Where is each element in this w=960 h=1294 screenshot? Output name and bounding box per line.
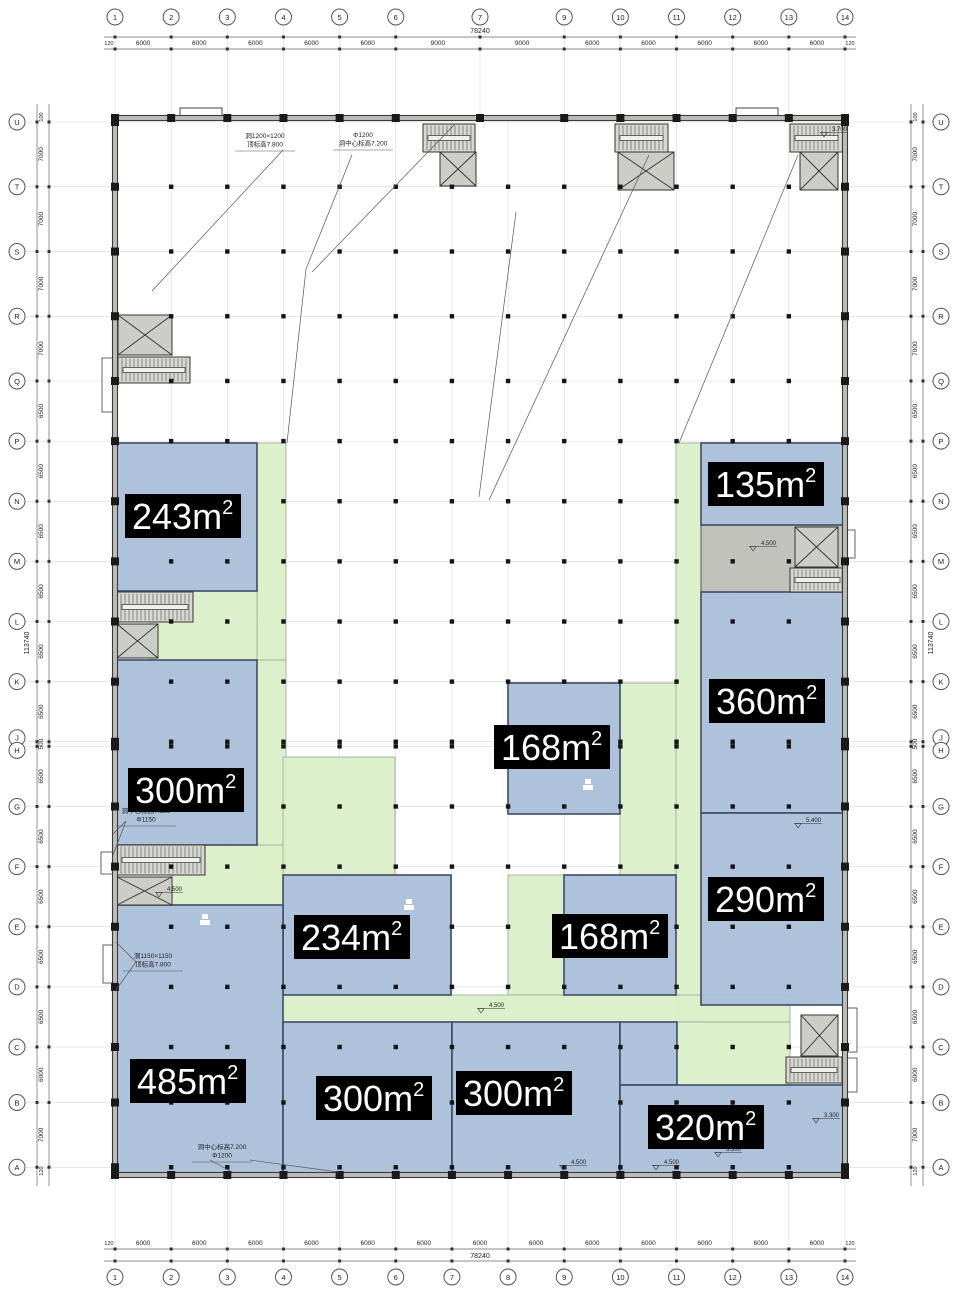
column-dot bbox=[337, 1045, 341, 1049]
axis-bubble-label: 7 bbox=[478, 13, 482, 22]
dim-tick bbox=[282, 48, 285, 51]
dim-label: 6000 bbox=[136, 1240, 151, 1247]
corridor-area bbox=[676, 1022, 790, 1085]
column-dot bbox=[225, 864, 229, 868]
axis-bubble-label: 2 bbox=[169, 13, 173, 22]
axis-bubble-label: S bbox=[14, 247, 19, 256]
axis-bubble-label: 12 bbox=[729, 1273, 737, 1282]
column-dot bbox=[450, 499, 454, 503]
column-dot bbox=[450, 740, 454, 744]
axis-bubble-label: 3 bbox=[225, 13, 229, 22]
axis-bubble-label: K bbox=[938, 677, 943, 686]
wall-column-mark bbox=[336, 114, 344, 122]
dim-tick bbox=[450, 1260, 453, 1263]
wall-column-mark bbox=[111, 983, 119, 991]
dim-tick bbox=[922, 1166, 925, 1169]
dim-tick bbox=[675, 48, 678, 51]
dim-tick bbox=[450, 1248, 453, 1251]
wall-column-mark bbox=[392, 114, 400, 122]
dim-tick bbox=[910, 560, 913, 563]
column-dot bbox=[674, 679, 678, 683]
column-dot bbox=[225, 925, 229, 929]
axis-bubble-label: H bbox=[938, 746, 943, 755]
column-dot bbox=[730, 439, 734, 443]
column-dot bbox=[281, 1165, 285, 1169]
wall-column-mark bbox=[729, 1171, 737, 1179]
dim-label: 6000 bbox=[304, 40, 319, 47]
column-dot bbox=[787, 985, 791, 989]
dim-label: 6000 bbox=[912, 1067, 919, 1082]
column-dot bbox=[787, 1045, 791, 1049]
stair-handrail bbox=[791, 1068, 837, 1073]
column-dot bbox=[730, 379, 734, 383]
dim-tick bbox=[619, 48, 622, 51]
dim-tick bbox=[787, 1260, 790, 1263]
column-dot bbox=[169, 619, 173, 623]
axis-bubble-label: L bbox=[15, 617, 19, 626]
column-dot bbox=[337, 744, 341, 748]
column-dot bbox=[450, 744, 454, 748]
column-dot bbox=[169, 439, 173, 443]
area-label: 300m2 bbox=[323, 1078, 424, 1119]
column-dot bbox=[787, 925, 791, 929]
dim-label: 6500 bbox=[38, 704, 45, 719]
column-dot bbox=[394, 864, 398, 868]
dim-tick bbox=[731, 36, 734, 39]
dim-label: 6500 bbox=[38, 829, 45, 844]
axis-bubble-label: 10 bbox=[616, 1273, 624, 1282]
axis-bubble-label: H bbox=[14, 746, 19, 755]
dim-tick bbox=[170, 1260, 173, 1263]
dim-tick bbox=[731, 1248, 734, 1251]
column-dot bbox=[225, 679, 229, 683]
axis-bubble-label: P bbox=[14, 437, 19, 446]
axis-bubble-label: 11 bbox=[673, 13, 681, 22]
column-dot bbox=[450, 1165, 454, 1169]
dim-tick bbox=[338, 1260, 341, 1263]
axis-bubble-label: 5 bbox=[338, 13, 342, 22]
wall-column-mark bbox=[223, 114, 231, 122]
axis-bubble-label: K bbox=[14, 677, 19, 686]
dim-label: 6000 bbox=[641, 1240, 656, 1247]
level-marker-value: 4.500 bbox=[571, 1160, 587, 1166]
dim-tick bbox=[36, 185, 39, 188]
column-dot bbox=[394, 1045, 398, 1049]
wall-column-mark bbox=[841, 312, 849, 320]
dim-label: 7000 bbox=[38, 212, 45, 227]
area-label: 300m2 bbox=[135, 770, 236, 811]
column-dot bbox=[281, 804, 285, 808]
annotation-text: 洞中心标高7.200 bbox=[198, 1142, 247, 1151]
dim-tick bbox=[36, 560, 39, 563]
column-dot bbox=[281, 1100, 285, 1104]
column-dot bbox=[169, 559, 173, 563]
axis-bubble-label: 11 bbox=[673, 1273, 681, 1282]
dim-tick bbox=[36, 680, 39, 683]
dim-tick bbox=[910, 985, 913, 988]
dim-tick bbox=[619, 1248, 622, 1251]
dim-tick bbox=[922, 865, 925, 868]
axis-bubble-label: E bbox=[938, 923, 943, 932]
axis-bubble-label: 9 bbox=[562, 1273, 566, 1282]
column-dot bbox=[730, 1100, 734, 1104]
dim-tick bbox=[922, 440, 925, 443]
column-dot bbox=[618, 499, 622, 503]
dim-tick bbox=[36, 985, 39, 988]
column-dot bbox=[394, 379, 398, 383]
column-dot bbox=[674, 379, 678, 383]
wall-column-mark bbox=[111, 312, 119, 320]
dim-tick bbox=[731, 1260, 734, 1263]
dim-tick bbox=[394, 1248, 397, 1251]
edge-dim-label: 120 bbox=[39, 1166, 45, 1175]
wall-column-mark bbox=[111, 618, 119, 626]
column-dot bbox=[337, 804, 341, 808]
column-dot bbox=[506, 619, 510, 623]
level-marker-value: 5.400 bbox=[806, 818, 822, 824]
wall-column-mark bbox=[841, 183, 849, 191]
axis-bubble-label: A bbox=[14, 1163, 19, 1172]
column-dot bbox=[169, 314, 173, 318]
dim-tick bbox=[282, 36, 285, 39]
column-dot bbox=[450, 439, 454, 443]
stair-handrail bbox=[795, 136, 838, 141]
column-dot bbox=[674, 744, 678, 748]
column-dot bbox=[225, 379, 229, 383]
dim-tick bbox=[48, 121, 51, 124]
column-dot bbox=[787, 249, 791, 253]
column-dot bbox=[506, 1045, 510, 1049]
column-dot bbox=[450, 249, 454, 253]
column-dot bbox=[562, 249, 566, 253]
wall-column-mark bbox=[841, 742, 849, 750]
axis-bubble-label: 13 bbox=[785, 1273, 793, 1282]
wall-column-mark bbox=[111, 863, 119, 871]
level-marker-value: 4.500 bbox=[167, 887, 183, 893]
column-dot bbox=[730, 740, 734, 744]
annotation-text: Φ1200 bbox=[353, 132, 373, 139]
dim-tick bbox=[922, 121, 925, 124]
column-dot bbox=[394, 619, 398, 623]
column-dot bbox=[730, 185, 734, 189]
column-dot bbox=[506, 185, 510, 189]
column-dot bbox=[169, 249, 173, 253]
axis-bubble-label: 4 bbox=[281, 1273, 285, 1282]
column-dot bbox=[450, 804, 454, 808]
level-marker-value: 4.500 bbox=[761, 541, 777, 547]
wall-column-mark bbox=[111, 497, 119, 505]
column-dot bbox=[337, 499, 341, 503]
wall-column-mark bbox=[476, 114, 484, 122]
dim-label: 7000 bbox=[912, 147, 919, 162]
column-dot bbox=[562, 439, 566, 443]
dim-tick bbox=[170, 48, 173, 51]
axis-bubble-label: E bbox=[14, 923, 19, 932]
wall-column-mark bbox=[841, 1171, 849, 1179]
dim-tick bbox=[48, 185, 51, 188]
dim-label: 6500 bbox=[912, 644, 919, 659]
edge-dim-label: 120 bbox=[845, 1241, 854, 1247]
dim-tick bbox=[48, 1101, 51, 1104]
column-dot bbox=[281, 379, 285, 383]
column-dot bbox=[730, 985, 734, 989]
column-dot bbox=[169, 740, 173, 744]
level-marker-value: 3.300 bbox=[824, 1113, 840, 1119]
dim-tick bbox=[48, 250, 51, 253]
column-dot bbox=[618, 314, 622, 318]
column-dot bbox=[394, 439, 398, 443]
area-label: 168m2 bbox=[559, 916, 660, 957]
column-dot bbox=[281, 249, 285, 253]
dim-tick bbox=[922, 745, 925, 748]
annotation-text: 洞中心标高7.200 bbox=[339, 139, 388, 148]
wall-column-mark bbox=[560, 114, 568, 122]
stair-handrail bbox=[122, 858, 200, 863]
toilet-icon bbox=[404, 905, 414, 910]
column-dot bbox=[674, 619, 678, 623]
area-label: 135m2 bbox=[715, 464, 816, 505]
wall-column-mark bbox=[785, 1171, 793, 1179]
dim-label: 7000 bbox=[38, 276, 45, 291]
axis-bubble-label: R bbox=[938, 312, 944, 321]
dim-label: 6000 bbox=[810, 40, 825, 47]
column-dot bbox=[562, 804, 566, 808]
total-dim-label: 78240 bbox=[470, 28, 490, 35]
area-label: 485m2 bbox=[137, 1061, 238, 1102]
column-dot bbox=[337, 314, 341, 318]
column-dot bbox=[337, 619, 341, 623]
dim-tick bbox=[507, 1248, 510, 1251]
wall-column-mark bbox=[560, 1171, 568, 1179]
wall-column-mark bbox=[504, 1171, 512, 1179]
leader-line bbox=[287, 269, 306, 443]
dim-label: 6500 bbox=[912, 1009, 919, 1024]
column-dot bbox=[281, 744, 285, 748]
dim-tick bbox=[48, 1166, 51, 1169]
dim-tick bbox=[36, 1101, 39, 1104]
column-dot bbox=[618, 439, 622, 443]
level-marker-value: 3.700 bbox=[832, 127, 848, 133]
column-dot bbox=[281, 925, 285, 929]
dim-tick bbox=[910, 315, 913, 318]
dim-tick bbox=[922, 315, 925, 318]
toilet-icon bbox=[406, 899, 412, 904]
column-dot bbox=[169, 185, 173, 189]
wall-column-mark bbox=[841, 618, 849, 626]
dim-tick bbox=[282, 1248, 285, 1251]
axis-bubble-label: 10 bbox=[616, 13, 624, 22]
annotation-text: 洞1150×1150 bbox=[134, 951, 173, 960]
dim-tick bbox=[48, 680, 51, 683]
axis-bubble-label: A bbox=[938, 1163, 943, 1172]
dim-tick bbox=[114, 48, 117, 51]
level-marker-value: 4.500 bbox=[664, 1160, 680, 1166]
column-dot bbox=[337, 740, 341, 744]
axis-bubble-label: 9 bbox=[562, 13, 566, 22]
dim-label: 6000 bbox=[697, 40, 712, 47]
column-dot bbox=[169, 379, 173, 383]
dim-label: 6000 bbox=[38, 1067, 45, 1082]
column-dot bbox=[225, 249, 229, 253]
dim-label: 7000 bbox=[912, 212, 919, 227]
column-dot bbox=[730, 744, 734, 748]
dim-tick bbox=[910, 680, 913, 683]
column-dot bbox=[618, 679, 622, 683]
column-dot bbox=[225, 1045, 229, 1049]
column-dot bbox=[394, 314, 398, 318]
annotation-text: 顶标高7.800 bbox=[247, 140, 283, 149]
dim-label: 6000 bbox=[248, 1240, 263, 1247]
dim-tick bbox=[338, 1248, 341, 1251]
axis-bubble-label: 8 bbox=[506, 1273, 510, 1282]
wall-column-mark bbox=[111, 183, 119, 191]
column-dot bbox=[281, 185, 285, 189]
dim-tick bbox=[910, 440, 913, 443]
dim-tick bbox=[619, 36, 622, 39]
column-dot bbox=[674, 314, 678, 318]
column-dot bbox=[618, 619, 622, 623]
level-marker-value: 4.500 bbox=[489, 1003, 505, 1009]
column-dot bbox=[394, 744, 398, 748]
column-dot bbox=[337, 679, 341, 683]
axis-bubble-label: B bbox=[14, 1098, 19, 1107]
axis-bubble-label: 3 bbox=[225, 1273, 229, 1282]
column-dot bbox=[281, 1045, 285, 1049]
dim-label: 6000 bbox=[304, 1240, 319, 1247]
annotation-text: Φ1150 bbox=[136, 817, 156, 824]
axis-bubble-label: C bbox=[14, 1043, 20, 1052]
edge-dim-label: 100 bbox=[39, 112, 45, 121]
dim-tick bbox=[910, 620, 913, 623]
column-dot bbox=[674, 499, 678, 503]
dim-label: 6500 bbox=[912, 949, 919, 964]
dim-tick bbox=[48, 805, 51, 808]
dim-label: 6500 bbox=[912, 464, 919, 479]
column-dot bbox=[787, 439, 791, 443]
wall-column-mark bbox=[111, 678, 119, 686]
column-dot bbox=[787, 1100, 791, 1104]
wall-column-mark bbox=[223, 1171, 231, 1179]
wall-column-mark bbox=[841, 863, 849, 871]
axis-bubble-label: L bbox=[939, 617, 943, 626]
column-dot bbox=[730, 864, 734, 868]
axis-bubble-label: F bbox=[939, 862, 944, 871]
dim-tick bbox=[563, 48, 566, 51]
column-dot bbox=[281, 314, 285, 318]
wall-column-mark bbox=[841, 1043, 849, 1051]
room-area bbox=[620, 1022, 677, 1085]
dim-tick bbox=[787, 1248, 790, 1251]
dim-tick bbox=[922, 380, 925, 383]
area-label: 168m2 bbox=[501, 727, 602, 768]
stair-handrail bbox=[795, 578, 840, 583]
column-dot bbox=[618, 744, 622, 748]
column-dot bbox=[506, 985, 510, 989]
column-dot bbox=[674, 985, 678, 989]
column-dot bbox=[337, 249, 341, 253]
dim-tick bbox=[338, 36, 341, 39]
dim-tick bbox=[48, 620, 51, 623]
dim-label: 6000 bbox=[192, 1240, 207, 1247]
axis-bubble-label: D bbox=[938, 983, 944, 992]
column-dot bbox=[394, 740, 398, 744]
dim-label: 6000 bbox=[810, 1240, 825, 1247]
axis-bubble-label: S bbox=[938, 247, 943, 256]
column-dot bbox=[394, 804, 398, 808]
dim-tick bbox=[48, 985, 51, 988]
column-dot bbox=[730, 619, 734, 623]
dim-tick bbox=[619, 1260, 622, 1263]
column-dot bbox=[450, 619, 454, 623]
stair-handrail bbox=[428, 136, 470, 141]
corridor-area bbox=[283, 757, 395, 875]
column-dot bbox=[394, 985, 398, 989]
dim-tick bbox=[48, 500, 51, 503]
area-label: 243m2 bbox=[132, 496, 233, 537]
dim-label: 6500 bbox=[912, 704, 919, 719]
axis-bubble-label: N bbox=[14, 497, 19, 506]
wall-column-mark bbox=[729, 114, 737, 122]
column-dot bbox=[450, 864, 454, 868]
axis-bubble-label: Q bbox=[14, 377, 20, 386]
wall-column-mark bbox=[111, 118, 119, 126]
column-dot bbox=[562, 559, 566, 563]
dim-label: 6000 bbox=[473, 1240, 488, 1247]
column-dot bbox=[506, 499, 510, 503]
column-dot bbox=[450, 925, 454, 929]
stair-handrail bbox=[620, 136, 663, 141]
axis-bubble-label: U bbox=[14, 118, 19, 127]
dim-label: 6000 bbox=[360, 40, 375, 47]
column-dot bbox=[450, 314, 454, 318]
dim-tick bbox=[114, 1260, 117, 1263]
column-dot bbox=[562, 1045, 566, 1049]
column-dot bbox=[618, 804, 622, 808]
column-dot bbox=[394, 1165, 398, 1169]
dim-tick bbox=[787, 36, 790, 39]
dim-tick bbox=[731, 48, 734, 51]
dim-label: 6000 bbox=[529, 1240, 544, 1247]
column-dot bbox=[281, 740, 285, 744]
column-dot bbox=[562, 679, 566, 683]
column-dot bbox=[225, 439, 229, 443]
toilet-icon bbox=[585, 779, 591, 784]
column-dot bbox=[674, 185, 678, 189]
dim-tick bbox=[922, 250, 925, 253]
column-dot bbox=[225, 619, 229, 623]
corridor-area bbox=[676, 443, 701, 1022]
dim-label: 6500 bbox=[912, 524, 919, 539]
total-dim-label: 113740 bbox=[928, 631, 935, 654]
dim-tick bbox=[843, 36, 846, 39]
column-dot bbox=[787, 379, 791, 383]
wall-column-mark bbox=[111, 923, 119, 931]
column-dot bbox=[562, 314, 566, 318]
column-dot bbox=[225, 185, 229, 189]
column-dot bbox=[730, 1165, 734, 1169]
dim-tick bbox=[843, 48, 846, 51]
dim-label: 6500 bbox=[912, 829, 919, 844]
axis-bubble-label: 7 bbox=[450, 1273, 454, 1282]
dim-tick bbox=[507, 1260, 510, 1263]
axis-bubble-label: J bbox=[15, 734, 19, 743]
column-dot bbox=[618, 249, 622, 253]
total-dim-label: 78240 bbox=[470, 1253, 490, 1260]
column-dot bbox=[281, 864, 285, 868]
column-dot bbox=[730, 925, 734, 929]
dim-tick bbox=[48, 380, 51, 383]
column-dot bbox=[787, 804, 791, 808]
